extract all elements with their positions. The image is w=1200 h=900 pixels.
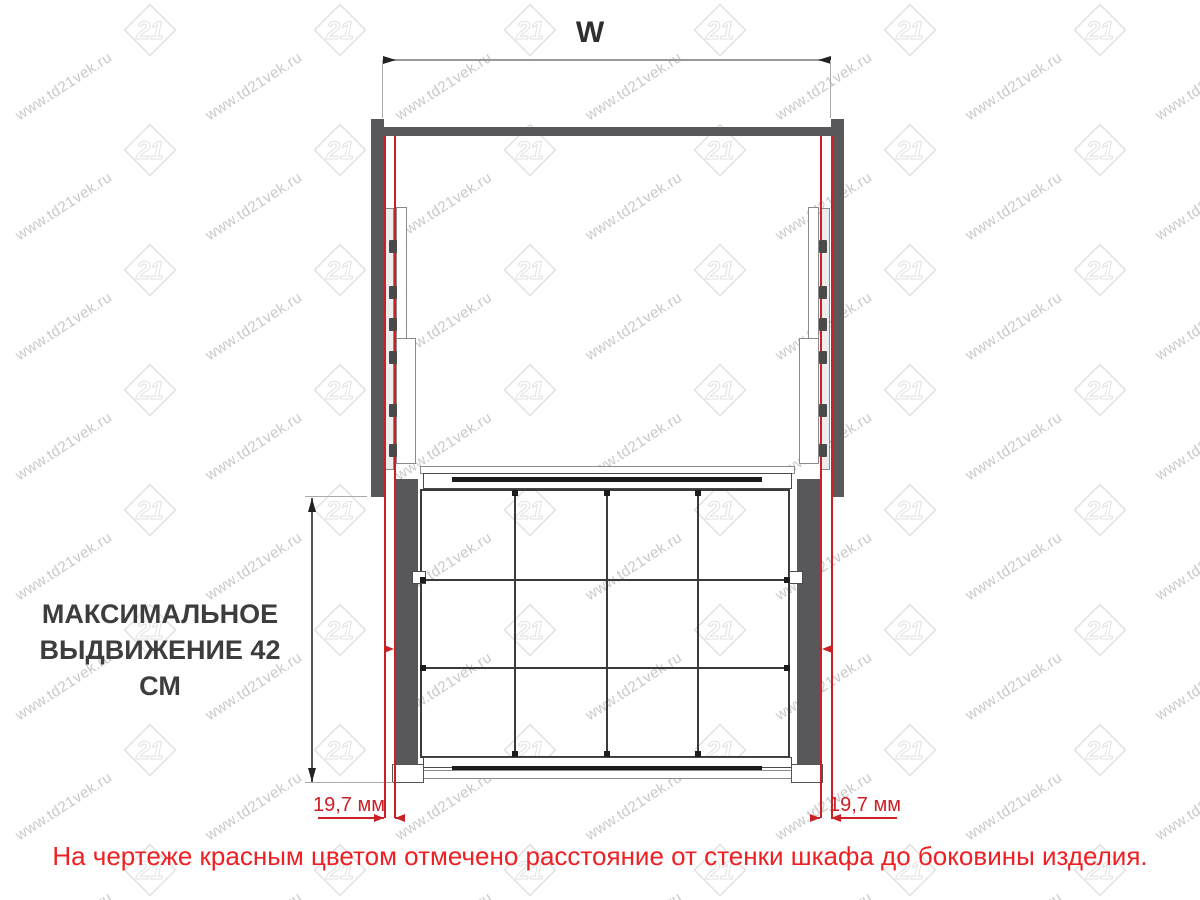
watermark-logo-icon: 21 [122,722,178,778]
watermark-text: www.td21vek.ru [962,649,1065,724]
watermark-text: www.td21vek.ru [12,529,115,604]
svg-text:21: 21 [515,137,544,165]
svg-text:21: 21 [1085,377,1114,405]
svg-text:21: 21 [135,257,164,285]
weld-dot [695,751,701,757]
rail-clip [389,404,397,417]
red-marker-left [384,645,394,653]
watermark-logo-icon: 21 [312,722,368,778]
rail-clip [819,240,827,253]
rail-clip [389,286,397,299]
watermark-text: www.td21vek.ru [392,889,495,900]
svg-text:21: 21 [325,737,354,765]
watermark-text: www.td21vek.ru [202,769,305,844]
watermark-text: www.td21vek.ru [202,289,305,364]
watermark-text: www.td21vek.ru [582,889,685,900]
basket-top-black-bar [452,477,762,482]
rail-clip [389,444,397,457]
weld-dot [420,577,426,583]
weld-dot [604,751,610,757]
extension-dim-line [311,498,313,783]
watermark-text: www.td21vek.ru [12,289,115,364]
watermark-text: www.td21vek.ru [392,169,495,244]
svg-text:21: 21 [325,617,354,645]
left-rail-inner-member [396,207,407,341]
watermark-text: www.td21vek.ru [962,769,1065,844]
rail-clip [819,286,827,299]
watermark-logo-icon: 21 [1072,362,1128,418]
basket-grid-horizontal-2 [422,667,788,669]
svg-text:21: 21 [895,377,924,405]
left-rail-outer-member [396,338,416,464]
watermark-logo-icon: 21 [312,602,368,658]
right-panel-foot [791,764,823,783]
watermark-logo-icon: 21 [122,362,178,418]
extension-ext-line-top [305,496,367,497]
width-extension-line-right [830,60,831,118]
rail-clip [389,240,397,253]
width-dimension-label: W [560,16,620,50]
watermark-text: www.td21vek.ru [202,889,305,900]
svg-text:21: 21 [325,137,354,165]
extension-ext-line-bottom [305,782,393,783]
weld-dot [784,577,790,583]
svg-text:21: 21 [325,257,354,285]
watermark-logo-icon: 21 [122,122,178,178]
svg-text:21: 21 [705,17,734,45]
left-panel-foot [392,764,424,783]
watermark-text: www.td21vek.ru [202,169,305,244]
watermark-logo-icon: 21 [1072,482,1128,538]
watermark-logo-icon: 21 [502,362,558,418]
rail-clip [819,444,827,457]
red-marker-right [822,645,832,653]
watermark-logo-icon: 21 [882,602,938,658]
watermark-text: www.td21vek.ru [582,769,685,844]
svg-text:21: 21 [895,617,924,645]
watermark-text: www.td21vek.ru [962,169,1065,244]
product-left-side-panel [395,479,418,770]
right-panel-connector-tab [789,571,803,584]
watermark-logo-icon: 21 [312,482,368,538]
svg-text:21: 21 [895,257,924,285]
watermark-logo-icon: 21 [312,2,368,58]
weld-dot [604,490,610,496]
watermark-logo-icon: 21 [1072,722,1128,778]
watermark-text: www.td21vek.ru [772,889,875,900]
rail-clip [389,318,397,331]
watermark-text: www.td21vek.ru [962,289,1065,364]
rail-clip [819,404,827,417]
watermark-logo-icon: 21 [122,242,178,298]
note-text: На чертеже красным цветом отмечено расст… [0,841,1200,872]
watermark-text: www.td21vek.ru [202,529,305,604]
rail-clip [389,351,397,364]
watermark-text: www.td21vek.ru [1152,649,1200,724]
watermark-text: www.td21vek.ru [1152,289,1200,364]
max-extension-label: МАКСИМАЛЬНОЕ ВЫДВИЖЕНИЕ 42 СМ [15,596,305,704]
watermark-text: www.td21vek.ru [12,409,115,484]
watermark-logo-icon: 21 [882,722,938,778]
svg-text:21: 21 [325,377,354,405]
watermark-text: www.td21vek.ru [12,769,115,844]
watermark-text: www.td21vek.ru [962,889,1065,900]
watermark-text: www.td21vek.ru [202,409,305,484]
basket-grid-vertical-3 [697,491,699,757]
svg-text:21: 21 [1085,17,1114,45]
svg-text:21: 21 [895,17,924,45]
red-clearance-line-left-wall [384,136,386,818]
cabinet-left-wall [371,119,384,497]
left-gap-arrow-b [395,814,405,822]
basket-bottom-rail-band [420,770,795,779]
watermark-text: www.td21vek.ru [1152,889,1200,900]
watermark-logo-icon: 21 [312,242,368,298]
svg-text:21: 21 [515,377,544,405]
watermark-logo-icon: 21 [312,122,368,178]
width-dimension-line [383,59,831,61]
watermark-text: www.td21vek.ru [582,289,685,364]
right-gap-arrow-b [810,814,820,822]
right-rail-outer-member [799,338,819,464]
watermark-logo-icon: 21 [692,362,748,418]
svg-text:21: 21 [1085,257,1114,285]
watermark-text: www.td21vek.ru [1152,529,1200,604]
watermark-logo-icon: 21 [882,362,938,418]
watermark-logo-icon: 21 [1072,122,1128,178]
watermark-text: www.td21vek.ru [962,49,1065,124]
svg-text:21: 21 [135,377,164,405]
watermark-logo-icon: 21 [1072,2,1128,58]
red-clearance-line-left-product [394,136,396,818]
svg-text:21: 21 [1085,617,1114,645]
watermark-logo-icon: 21 [882,122,938,178]
basket-grid-vertical-1 [514,491,516,757]
watermark-logo-icon: 21 [1072,602,1128,658]
watermark-logo-icon: 21 [312,362,368,418]
svg-text:21: 21 [705,257,734,285]
right-gap-label: 19,7 мм [828,794,902,817]
watermark-logo-icon: 21 [692,242,748,298]
svg-text:21: 21 [895,137,924,165]
watermark-logo-icon: 21 [502,2,558,58]
product-right-side-panel [797,479,820,770]
svg-text:21: 21 [135,137,164,165]
svg-text:21: 21 [1085,497,1114,525]
svg-text:21: 21 [135,737,164,765]
weld-dot [695,490,701,496]
svg-text:21: 21 [515,17,544,45]
watermark-logo-icon: 21 [1072,242,1128,298]
svg-text:21: 21 [895,737,924,765]
watermark-text: www.td21vek.ru [1152,409,1200,484]
watermark-text: www.td21vek.ru [962,409,1065,484]
left-gap-label: 19,7 мм [312,794,386,817]
extension-dim-arrow-bottom [308,768,316,782]
watermark-logo-icon: 21 [122,482,178,538]
watermark-text: www.td21vek.ru [1152,169,1200,244]
watermark-text: www.td21vek.ru [1152,769,1200,844]
svg-text:21: 21 [895,497,924,525]
watermark-text: www.td21vek.ru [12,889,115,900]
rail-clip [819,318,827,331]
right-rail-inner-member [808,207,819,341]
watermark-logo-icon: 21 [882,242,938,298]
rail-clip [819,351,827,364]
watermark-text: www.td21vek.ru [12,49,115,124]
basket-grid-vertical-2 [606,491,608,757]
watermark-text: www.td21vek.ru [12,169,115,244]
weld-dot [512,751,518,757]
cabinet-back-panel [384,127,831,136]
svg-text:21: 21 [705,137,734,165]
max-extension-line1: МАКСИМАЛЬНОЕ [15,596,305,632]
max-extension-line2: ВЫДВИЖЕНИЕ 42 СМ [15,632,305,704]
watermark-logo-icon: 21 [692,2,748,58]
red-clearance-line-right-wall [831,136,833,818]
svg-text:21: 21 [1085,737,1114,765]
watermark-logo-icon: 21 [882,2,938,58]
watermark-logo-icon: 21 [122,2,178,58]
svg-text:21: 21 [705,377,734,405]
weld-dot [420,665,426,671]
watermark-text: www.td21vek.ru [962,529,1065,604]
watermark-text: www.td21vek.ru [202,49,305,124]
technical-drawing-page: www.td21vek.ru21www.td21vek.ru21www.td21… [0,0,1200,900]
weld-dot [784,665,790,671]
width-extension-line-left [382,60,383,118]
watermark-logo-icon: 21 [882,482,938,538]
watermark-text: www.td21vek.ru [582,169,685,244]
width-dim-arrow-left [383,56,396,64]
svg-text:21: 21 [325,17,354,45]
basket-frame [420,489,790,758]
watermark-logo-icon: 21 [502,242,558,298]
svg-text:21: 21 [135,17,164,45]
weld-dot [512,490,518,496]
extension-dim-arrow-top [308,498,316,512]
basket-grid-horizontal-1 [422,579,788,581]
red-clearance-line-right-product [820,136,822,818]
svg-text:21: 21 [1085,137,1114,165]
watermark-text: www.td21vek.ru [1152,49,1200,124]
svg-text:21: 21 [515,257,544,285]
svg-text:21: 21 [135,497,164,525]
svg-text:21: 21 [325,497,354,525]
